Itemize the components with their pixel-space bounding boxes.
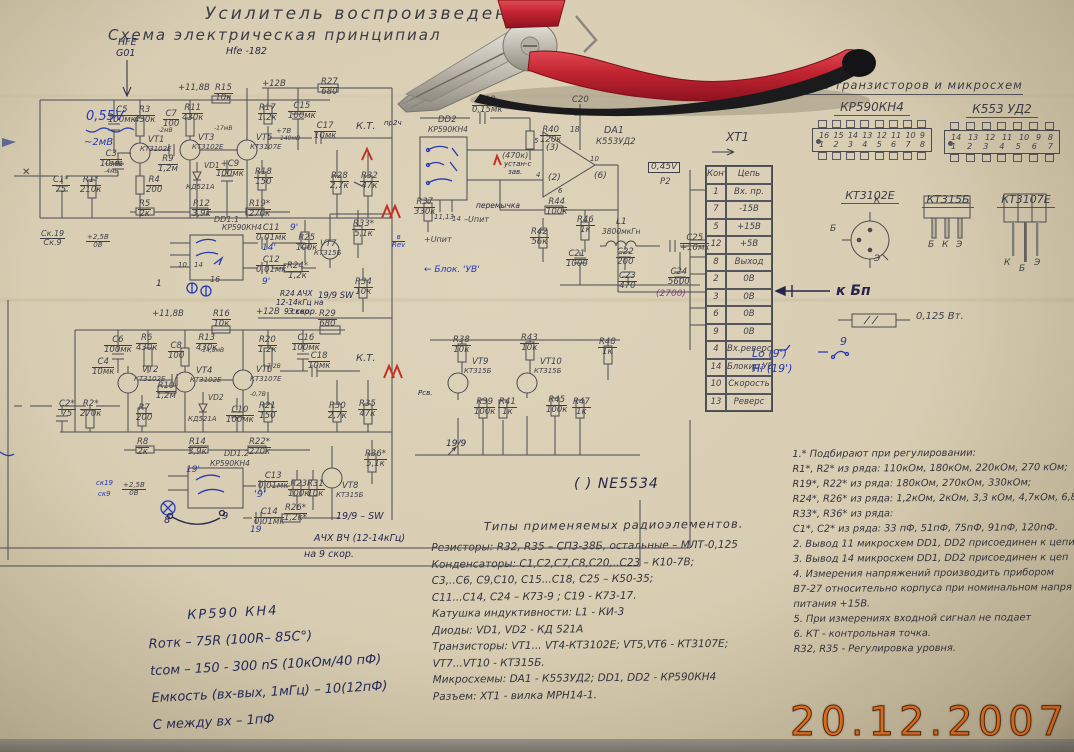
- photo-of-schematic: Усилитель воспроизведения Схема электрич…: [0, 0, 1074, 752]
- pin-label: Б: [830, 224, 836, 234]
- pin-number: 4: [999, 142, 1004, 151]
- parts-list-lines: Резисторы: R32, R35 – СП3-38Б, остальные…: [431, 536, 798, 705]
- transistor-name: КТ3107Е: [997, 193, 1054, 208]
- connector-circuit-name: 0В: [726, 306, 772, 324]
- connector-pin-number: 14: [706, 359, 726, 377]
- transistor-pinout-kt315b: КТ315Б Б К Э: [908, 188, 988, 208]
- pin-square: [966, 122, 975, 130]
- transistor-pinout-kt3102e: КТ3102Е К Б Э: [830, 184, 910, 280]
- pin-square: [917, 152, 926, 160]
- pin-numbers: 12345678: [819, 140, 925, 149]
- pin-row: [808, 152, 936, 160]
- pin-square: [818, 120, 827, 128]
- dip-chip-pinout: КР590КН416151413121110912345678: [808, 96, 936, 160]
- pin-number: 2: [833, 140, 838, 149]
- connector-pin-number: 1: [706, 184, 726, 202]
- pin-square: [889, 152, 898, 160]
- pen-note-hfe: Hfe -182: [226, 46, 267, 57]
- to-power-supply-label: к Бп: [836, 283, 871, 299]
- transistor-pinout-kt3107e: КТ3107Е К Б Э: [986, 188, 1066, 208]
- tuning-notes-lines: 1.* Подбирают при регулировании:R1*, R2*…: [792, 445, 1074, 657]
- pin-square: [889, 120, 898, 128]
- connector-pin-number: 7: [706, 201, 726, 219]
- connector-pin-number: 10: [706, 376, 726, 394]
- pin-square: [997, 122, 1006, 130]
- connector-pin-number: 12: [706, 236, 726, 254]
- connector-circuit-name: 0В: [726, 324, 772, 342]
- pin-numbers: 1234567: [951, 142, 1053, 151]
- pin-square: [966, 154, 975, 162]
- connector-title: ХТ1: [726, 130, 749, 144]
- pin-square: [860, 152, 869, 160]
- ne5534-note: ( ) NE5534: [574, 476, 659, 492]
- resistor-wattage-note: 0,125 Вт.: [916, 311, 964, 322]
- pin-square: [903, 152, 912, 160]
- pin-number: 12: [985, 133, 995, 142]
- connector-pin-number: 9: [706, 324, 726, 342]
- pin-number: 9: [1036, 133, 1041, 142]
- pin-number: 13: [862, 131, 872, 140]
- pin-square: [1029, 154, 1038, 162]
- pin-number: 16: [819, 131, 829, 140]
- tuning-notes: 1.* Подбирают при регулировании:R1*, R2*…: [792, 445, 1074, 657]
- annotation-switch-number: 9: [840, 334, 847, 349]
- connector-blue-annotation: Lo (9') Hi (19') 9: [752, 346, 792, 376]
- pin-number: 8: [1048, 133, 1053, 142]
- pin-numbers: 141312111098: [951, 133, 1053, 142]
- pin-square: [832, 152, 841, 160]
- pin-label: Э: [956, 240, 962, 250]
- pin-square: [860, 120, 869, 128]
- pin-label: Б: [1019, 264, 1025, 274]
- handwritten-ic-specs: КР590 КН4Rотк – 75R (100R– 85C°)tсом – 1…: [147, 592, 390, 739]
- parts-list-title: Типы применяемых радиоэлементов.: [431, 516, 796, 534]
- pin-square: [1029, 122, 1038, 130]
- dip-chip-pinout: К553 УД21413121110981234567: [940, 98, 1064, 162]
- chip-name: КР590КН4: [834, 100, 910, 116]
- tuning-note-line: R1*, R2* из ряда: 110кОм, 180кОм, 220кОм…: [792, 460, 1074, 477]
- pin-row: [808, 120, 936, 128]
- pin-number: 3: [848, 140, 853, 149]
- pin-square: [950, 122, 959, 130]
- annotation-lo: Lo (9'): [752, 346, 792, 361]
- pin-number: 10: [1019, 133, 1029, 142]
- pinout-panel-heading: вка транзисторов и микросхем: [806, 78, 1023, 95]
- pin-label: Э: [874, 254, 880, 264]
- pin-number: 11: [891, 131, 901, 140]
- pin-label: Б: [928, 240, 934, 250]
- connector-pin-number: 4: [706, 341, 726, 359]
- connector-pin-number: 5: [706, 219, 726, 237]
- pin-number: 8: [920, 140, 925, 149]
- schematic-title-line2: Схема электрическая принципиал: [108, 26, 442, 44]
- transistor-drawing: [830, 204, 910, 276]
- tuning-note-line: R32, R35 - Регулировка уровня.: [794, 640, 1074, 657]
- pin-number: 6: [1032, 142, 1037, 151]
- pin-number: 14: [951, 133, 961, 142]
- pin-row: [940, 154, 1064, 162]
- connector-pin-number: 3: [706, 289, 726, 307]
- paper-crease: [0, 299, 1074, 301]
- pin1-dot: [816, 139, 821, 144]
- connector-circuit-name: Реверс: [726, 394, 772, 412]
- pin-square: [1045, 154, 1054, 162]
- pin-square: [1045, 122, 1054, 130]
- pin-square: [903, 120, 912, 128]
- pin-number: 2: [967, 142, 972, 151]
- chip-name: К553 УД2: [966, 102, 1038, 118]
- connector-circuit-name: +5В: [726, 236, 772, 254]
- pin-number: 4: [862, 140, 867, 149]
- pin-number: 7: [1048, 142, 1053, 151]
- handwritten-ic-specs-lines: КР590 КН4Rотк – 75R (100R– 85C°)tсом – 1…: [147, 592, 390, 739]
- connector-circuit-name: -15В: [726, 201, 772, 219]
- pin-number: 5: [877, 140, 882, 149]
- pin-number: 12: [877, 131, 887, 140]
- connector-col-header: Цепь: [726, 166, 772, 184]
- pin-label: К: [1004, 258, 1010, 268]
- pin-square: [950, 154, 959, 162]
- pin-label: К: [942, 240, 948, 250]
- pin-square: [917, 120, 926, 128]
- pin-number: 10: [905, 131, 915, 140]
- pin-number: 14: [848, 131, 858, 140]
- tuning-note-line: В7-27 относительно корпуса при номинальн…: [793, 580, 1074, 597]
- pin-number: 11: [1002, 133, 1012, 142]
- pin-number: 9: [920, 131, 925, 140]
- chip-body: 1413121110981234567: [944, 130, 1060, 154]
- connector-pin-number: 8: [706, 254, 726, 272]
- pin-square: [1013, 122, 1022, 130]
- connector-col-header: Конт.: [706, 166, 726, 184]
- transistor-name: КТ315Б: [922, 193, 973, 208]
- pin-square: [875, 152, 884, 160]
- pin-label: Э: [1034, 258, 1040, 268]
- pin-row: [940, 122, 1064, 130]
- pin-number: 13: [968, 133, 978, 142]
- connector-circuit-name: +15В: [726, 219, 772, 237]
- connector-circuit-name: Вх. пр.: [726, 184, 772, 202]
- pin-number: 3: [983, 142, 988, 151]
- connector-circuit-name: Скорость: [726, 376, 772, 394]
- connector-pin-number: 6: [706, 306, 726, 324]
- connector-pin-number: 13: [706, 394, 726, 412]
- pin-square: [982, 122, 991, 130]
- pin-square: [875, 120, 884, 128]
- pin-square: [846, 120, 855, 128]
- connector-circuit-name: 0В: [726, 289, 772, 307]
- pin-number: 7: [905, 140, 910, 149]
- pin-square: [818, 152, 827, 160]
- parts-list: Типы применяемых радиоэлементов. Резисто…: [431, 516, 798, 705]
- pin-square: [1013, 154, 1022, 162]
- tuning-note-line: R24*, R26* из ряда: 1,2кОм, 2кОм, 3,3 кО…: [793, 490, 1074, 507]
- transistor-name: КТ3102Е: [841, 189, 898, 204]
- annotation-hi: Hi (19'): [752, 361, 792, 376]
- photo-background-edge: [0, 739, 1074, 752]
- connector-pin-number: 2: [706, 271, 726, 289]
- pin-number: 5: [1016, 142, 1021, 151]
- pin-square: [982, 154, 991, 162]
- connector-circuit-name: 0В: [726, 271, 772, 289]
- pin-square: [846, 152, 855, 160]
- schematic-title-line1: Усилитель воспроизведения: [205, 4, 537, 24]
- pin-square: [997, 154, 1006, 162]
- pin-square: [832, 120, 841, 128]
- chip-body: 16151413121110912345678: [812, 128, 932, 152]
- pin-numbers: 161514131211109: [819, 131, 925, 140]
- pin-label: К: [874, 196, 880, 206]
- pin-number: 6: [891, 140, 896, 149]
- pin1-dot: [948, 141, 953, 146]
- pin-number: 15: [833, 131, 843, 140]
- connector-circuit-name: Выход: [726, 254, 772, 272]
